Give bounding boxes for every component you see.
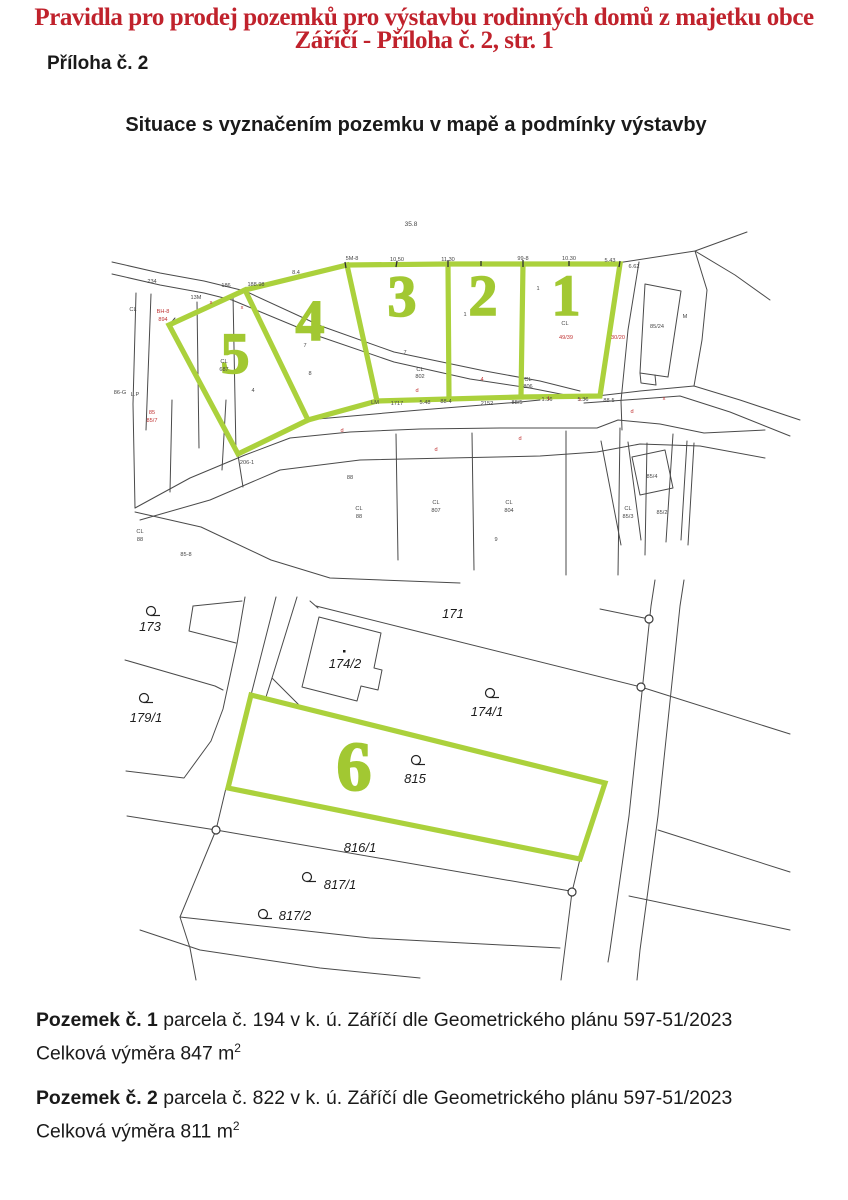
svg-text:CL: CL: [524, 377, 531, 383]
svg-text:2: 2: [469, 263, 498, 328]
svg-text:1: 1: [536, 286, 539, 292]
svg-text:99-8: 99-8: [517, 256, 528, 262]
svg-text:5.43: 5.43: [605, 258, 616, 264]
svg-text:30/20: 30/20: [611, 335, 625, 341]
svg-text:815: 815: [404, 771, 426, 786]
svg-text:88: 88: [356, 514, 362, 520]
svg-text:CL: CL: [136, 529, 143, 535]
svg-text:7: 7: [403, 350, 406, 356]
svg-text:M: M: [683, 314, 688, 320]
svg-text:804: 804: [504, 508, 513, 514]
svg-text:817/1: 817/1: [324, 877, 357, 892]
svg-text:4: 4: [480, 377, 483, 383]
svg-text:CL: CL: [561, 321, 568, 327]
svg-text:173: 173: [139, 619, 161, 634]
svg-text:894: 894: [158, 317, 167, 323]
svg-text:CL: CL: [355, 506, 362, 512]
svg-text:BH-8: BH-8: [157, 309, 170, 315]
svg-text:1: 1: [552, 263, 581, 328]
svg-text:188.98: 188.98: [247, 282, 264, 288]
svg-text:88-4: 88-4: [440, 399, 451, 405]
svg-text:687: 687: [219, 367, 228, 373]
svg-text:LM: LM: [371, 400, 379, 406]
svg-text:d: d: [340, 428, 343, 434]
svg-text:3: 3: [388, 264, 417, 329]
svg-text:x: x: [241, 305, 244, 311]
svg-text:802: 802: [415, 374, 424, 380]
svg-text:4: 4: [251, 388, 254, 394]
svg-text:CL: CL: [432, 500, 439, 506]
svg-text:d: d: [415, 388, 418, 394]
svg-text:11.30: 11.30: [441, 257, 455, 263]
svg-text:x: x: [210, 300, 213, 306]
svg-text:171: 171: [442, 606, 464, 621]
svg-text:186: 186: [221, 283, 230, 289]
svg-text:CL: CL: [220, 359, 227, 365]
svg-text:85/2: 85/2: [657, 510, 668, 516]
svg-text:174/2: 174/2: [329, 656, 362, 671]
svg-text:35.8: 35.8: [405, 221, 418, 228]
svg-text:6.62: 6.62: [629, 264, 640, 270]
svg-text:CL: CL: [129, 307, 136, 313]
svg-text:179/1: 179/1: [130, 710, 163, 725]
svg-text:2152: 2152: [481, 401, 493, 407]
svg-text:88: 88: [137, 537, 143, 543]
svg-text:L: L: [547, 396, 550, 402]
svg-text:88: 88: [347, 475, 353, 481]
svg-text:806: 806: [523, 384, 532, 390]
svg-text:85: 85: [149, 410, 155, 416]
svg-text:85-8: 85-8: [180, 552, 191, 558]
svg-text:1: 1: [463, 312, 466, 318]
svg-text:85/24: 85/24: [650, 324, 664, 330]
svg-text:d: d: [434, 447, 437, 453]
svg-text:L.P: L.P: [131, 392, 140, 398]
svg-text:x: x: [579, 397, 582, 403]
svg-text:88-5: 88-5: [603, 398, 614, 404]
svg-text:5.48: 5.48: [420, 400, 431, 406]
svg-text:CL: CL: [505, 500, 512, 506]
svg-text:4: 4: [296, 288, 325, 353]
svg-text:10.30: 10.30: [562, 256, 576, 262]
svg-text:1717: 1717: [391, 401, 403, 407]
svg-text:86-G: 86-G: [114, 390, 126, 396]
svg-text:13M: 13M: [191, 295, 202, 301]
svg-text:6: 6: [337, 729, 372, 806]
svg-text:85/3: 85/3: [623, 514, 634, 520]
svg-text:8: 8: [308, 371, 311, 377]
svg-text:807: 807: [431, 508, 440, 514]
svg-text:10.50: 10.50: [390, 257, 404, 263]
svg-text:817/2: 817/2: [279, 908, 312, 923]
svg-text:CL: CL: [624, 506, 631, 512]
svg-text:9: 9: [494, 537, 497, 543]
svg-text:85/4: 85/4: [647, 474, 658, 480]
svg-text:816/1: 816/1: [344, 840, 377, 855]
svg-text:d: d: [518, 436, 521, 442]
svg-text:7: 7: [303, 343, 306, 349]
svg-text:8.4: 8.4: [292, 270, 300, 276]
svg-text:174/1: 174/1: [471, 704, 504, 719]
svg-text:d: d: [630, 409, 633, 415]
svg-text:CL: CL: [416, 367, 423, 373]
svg-text:49/39: 49/39: [559, 335, 573, 341]
svg-text:85/7: 85/7: [147, 418, 158, 424]
svg-text:206-1: 206-1: [240, 460, 254, 466]
svg-text:5M-8: 5M-8: [346, 256, 359, 262]
svg-text:5: 5: [221, 321, 250, 386]
svg-text:x: x: [663, 396, 666, 402]
svg-text:234: 234: [147, 279, 156, 285]
svg-text:88/5: 88/5: [512, 400, 523, 406]
